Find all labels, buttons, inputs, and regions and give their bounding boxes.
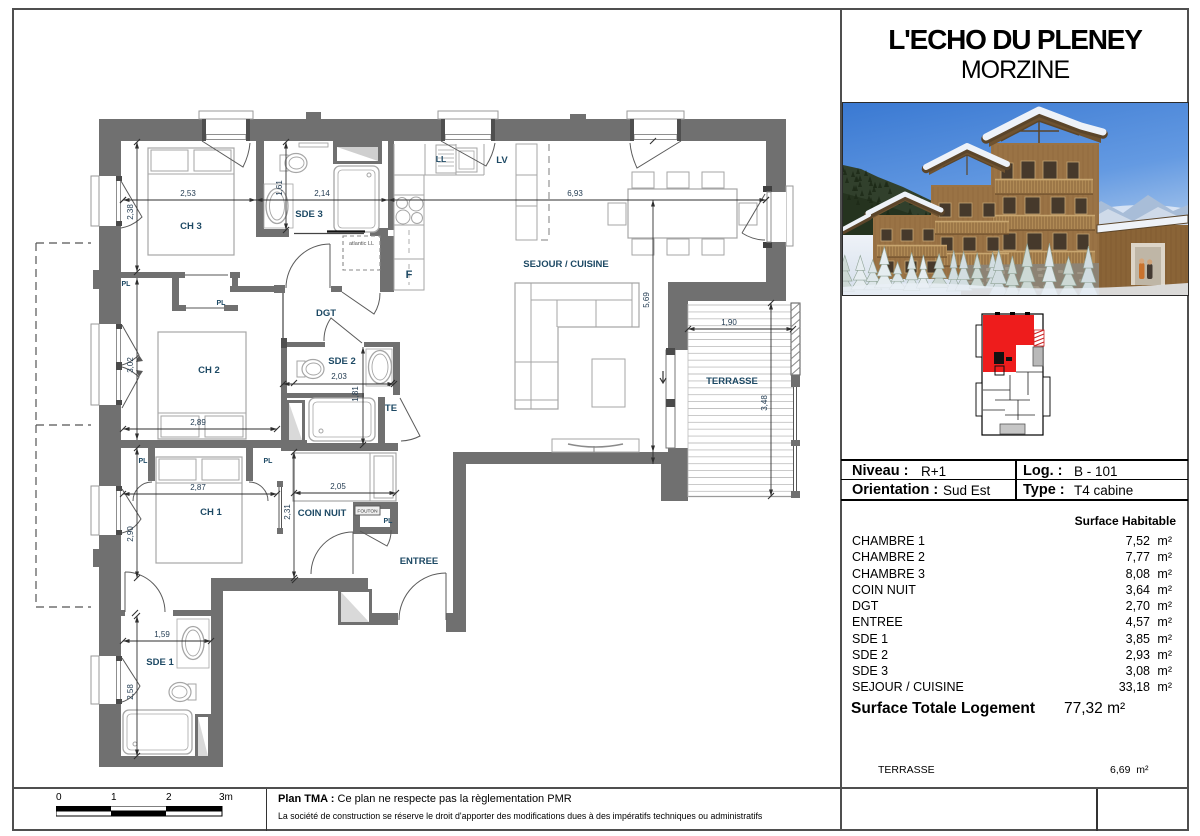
- svg-text:2,31: 2,31: [283, 504, 292, 520]
- svg-text:TE: TE: [385, 403, 397, 414]
- svg-text:atlantic LL: atlantic LL: [349, 241, 374, 247]
- svg-text:LL: LL: [436, 154, 446, 164]
- svg-text:CH 1: CH 1: [200, 507, 222, 518]
- svg-text:TERRASSE: TERRASSE: [706, 376, 758, 387]
- svg-text:PL: PL: [384, 518, 394, 525]
- svg-text:2,90: 2,90: [126, 526, 135, 542]
- svg-text:2,38: 2,38: [126, 204, 135, 220]
- svg-text:DGT: DGT: [316, 308, 336, 319]
- svg-text:CH 2: CH 2: [198, 365, 220, 376]
- svg-text:3,02: 3,02: [126, 357, 135, 373]
- svg-text:1,81: 1,81: [351, 386, 360, 402]
- svg-text:SEJOUR / CUISINE: SEJOUR / CUISINE: [523, 259, 609, 270]
- svg-text:COIN NUIT: COIN NUIT: [298, 508, 347, 519]
- svg-text:ENTREE: ENTREE: [400, 556, 439, 567]
- svg-text:PL: PL: [217, 300, 227, 307]
- svg-text:F: F: [406, 269, 413, 281]
- svg-text:CH 3: CH 3: [180, 221, 202, 232]
- svg-text:1,59: 1,59: [154, 630, 170, 639]
- svg-text:PL: PL: [122, 281, 132, 288]
- svg-text:2,03: 2,03: [331, 372, 347, 381]
- svg-text:5,69: 5,69: [642, 292, 651, 308]
- svg-text:2,58: 2,58: [126, 684, 135, 700]
- svg-text:SDE 2: SDE 2: [328, 356, 355, 367]
- svg-text:SDE 1: SDE 1: [146, 657, 174, 668]
- svg-text:2,89: 2,89: [190, 418, 206, 427]
- svg-text:FOUTON: FOUTON: [357, 509, 378, 515]
- svg-text:PL: PL: [139, 458, 149, 465]
- svg-text:SDE 3: SDE 3: [295, 209, 322, 220]
- svg-text:6,93: 6,93: [567, 189, 583, 198]
- svg-text:2,14: 2,14: [314, 189, 330, 198]
- svg-text:2,53: 2,53: [180, 189, 196, 198]
- svg-text:1,61: 1,61: [275, 180, 284, 196]
- svg-text:2,05: 2,05: [330, 482, 346, 491]
- svg-text:3,48: 3,48: [760, 395, 769, 411]
- svg-text:1,90: 1,90: [721, 318, 737, 327]
- svg-text:PL: PL: [264, 458, 274, 465]
- svg-text:LV: LV: [496, 155, 508, 166]
- svg-text:2,87: 2,87: [190, 483, 206, 492]
